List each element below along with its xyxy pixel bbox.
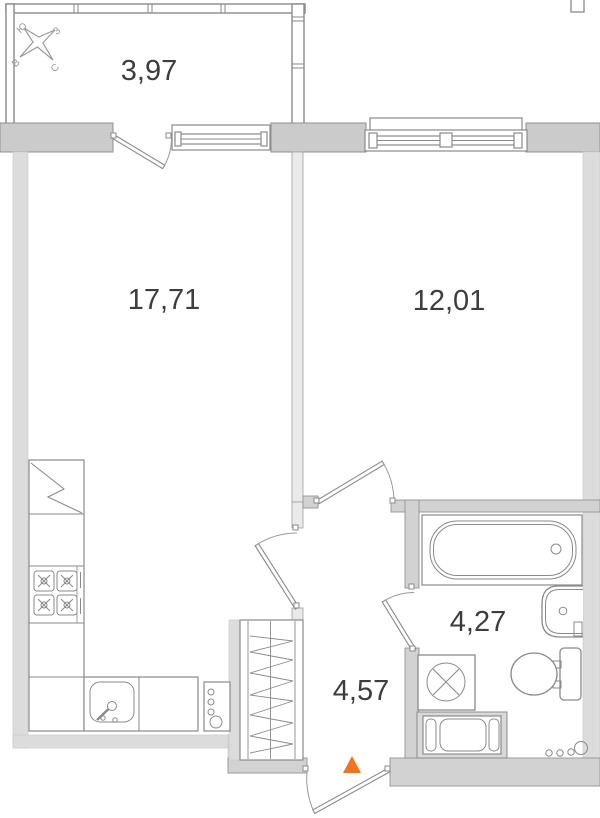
living-kitchen-area-label: 17,71: [128, 284, 201, 316]
compass-north-label: С: [49, 62, 62, 75]
bathtub-icon: [422, 515, 582, 585]
hallway-area-label: 4,57: [333, 675, 389, 707]
bathroom-area-label: 4,27: [450, 606, 506, 638]
neighbor-balcony-stub: [571, 0, 584, 12]
balcony-window-icon: [172, 125, 270, 150]
bedroom-window-icon: [365, 118, 527, 151]
toilet-icon: [511, 648, 581, 700]
riser-pipes-icon: [204, 682, 230, 731]
ventilation-shaft-icon: [417, 712, 507, 758]
bedroom-area-label: 12,01: [413, 285, 486, 317]
bathroom-risers-icon: [546, 742, 588, 757]
balcony-door-icon: [111, 133, 172, 169]
living-room-door-icon: [255, 525, 299, 609]
washbasin-icon: [542, 586, 583, 637]
kitchen-counter: [29, 460, 198, 731]
balcony-area-label: 3,97: [121, 55, 177, 87]
wardrobe-icon: [240, 620, 303, 760]
entrance-door-icon: [303, 766, 390, 813]
floor-plan-canvas: Ю З В С: [0, 0, 600, 818]
washing-machine-icon: [418, 655, 475, 710]
floor-plan: Ю З В С: [0, 0, 600, 818]
entrance-marker-icon: [343, 756, 361, 773]
bathroom-door-icon: [382, 584, 415, 651]
compass-rose-icon: Ю З В С: [10, 21, 63, 75]
bedroom-door-icon: [314, 461, 395, 504]
compass-west-label: З: [51, 25, 63, 37]
